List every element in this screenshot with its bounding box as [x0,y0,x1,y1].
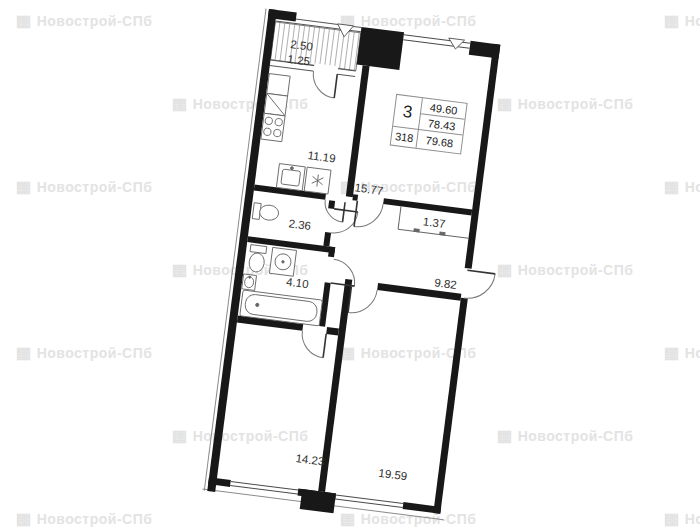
watermark-building-icon: ▦ [172,262,188,278]
floor-plan-drawing [206,9,501,529]
watermark-text: Новострой-СПб [518,428,634,444]
watermark: ▦Новострой-СПб [664,179,700,195]
watermark: ▦Новострой-СПб [497,96,633,112]
watermark-text: Новострой-СПб [685,13,700,29]
unit-info-table: 3 49.60 78.43 318 79.68 [390,94,468,155]
watermark-text: Новострой-СПб [37,13,153,29]
watermark-building-icon: ▦ [172,96,188,112]
watermark-building-icon: ▦ [497,96,513,112]
watermark-text: Новострой-СПб [685,345,700,361]
watermark-building-icon: ▦ [172,428,188,444]
watermark: ▦Новострой-СПб [16,511,152,527]
kitchen-sink-icon [276,164,305,191]
watermark-text: Новострой-СПб [518,96,634,112]
watermark-text: Новострой-СПб [685,179,700,195]
kitchen-counter-icon [264,74,290,116]
floor-plan-page: ▦Новострой-СПб▦Новострой-СПб▦Новострой-С… [0,0,700,531]
washing-machine-icon [269,247,296,276]
watermark: ▦Новострой-СПб [664,13,700,29]
watermark: ▦Новострой-СПб [664,345,700,361]
toilet2-icon [248,245,267,273]
bath-sink-icon [242,274,257,291]
fridge-snowflake-icon [304,167,331,194]
facade-lines [202,8,505,521]
watermark-building-icon: ▦ [16,511,32,527]
watermark: ▦Новострой-СПб [16,13,152,29]
watermark-building-icon: ▦ [664,13,680,29]
watermark: ▦Новострой-СПб [16,179,152,195]
watermark-text: Новострой-СПб [37,345,153,361]
watermark-building-icon: ▦ [664,345,680,361]
watermark-building-icon: ▦ [664,179,680,195]
watermark-building-icon: ▦ [664,511,680,527]
watermark: ▦Новострой-СПб [664,511,700,527]
watermark: ▦Новострой-СПб [497,428,633,444]
watermark-building-icon: ▦ [16,179,32,195]
watermark-building-icon: ▦ [16,345,32,361]
watermark-text: Новострой-СПб [37,179,153,195]
toilet-icon [252,203,279,222]
unit-number: 318 [391,127,419,148]
watermark-building-icon: ▦ [16,13,32,29]
watermark: ▦Новострой-СПб [16,345,152,361]
stove-icon [261,113,285,141]
watermark-text: Новострой-СПб [685,511,700,527]
apartment-floor-plan: 2.50 1.25 11.19 15.77 1.37 2.36 4.10 9.8… [206,9,501,529]
watermark-building-icon: ▦ [497,262,513,278]
watermark-text: Новострой-СПб [37,511,153,527]
watermark-text: Новострой-СПб [518,262,634,278]
watermark-building-icon: ▦ [497,428,513,444]
watermark: ▦Новострой-СПб [497,262,633,278]
